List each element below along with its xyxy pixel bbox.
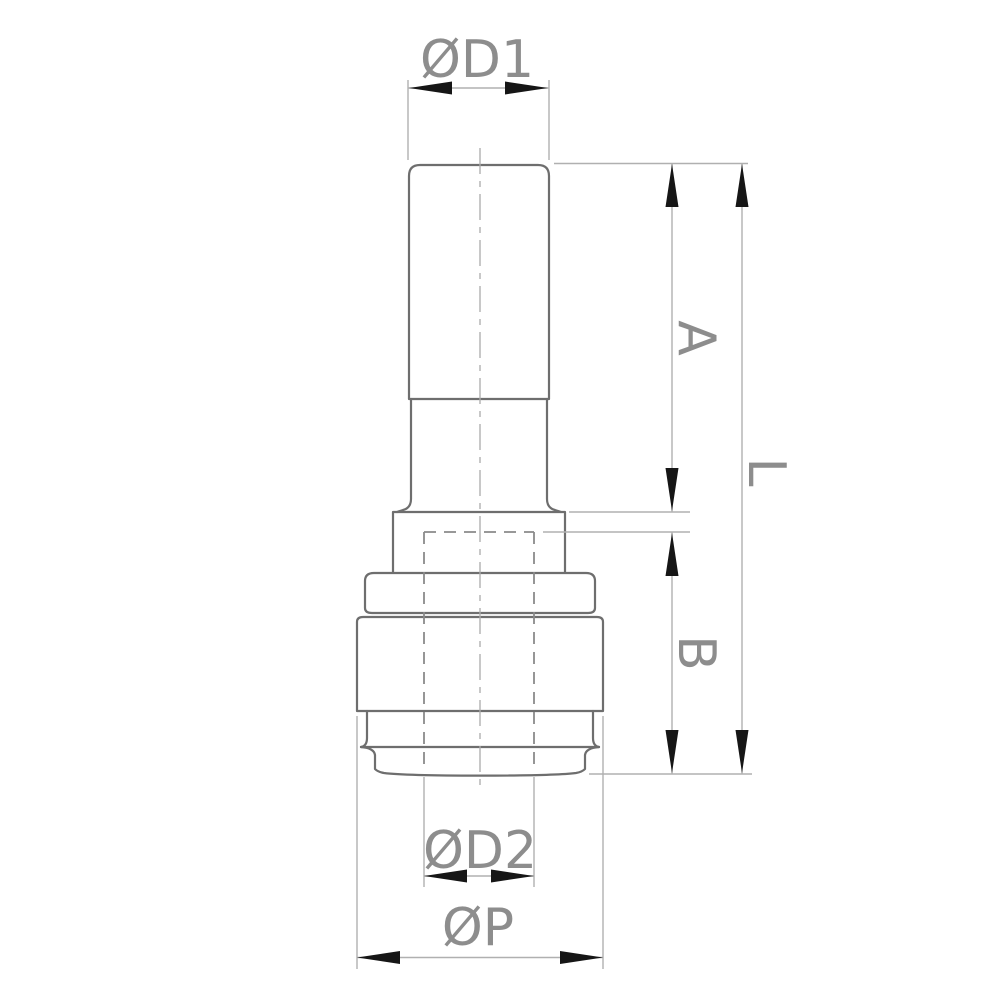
lip-to-cap-left: [361, 747, 375, 755]
fitting-technical-drawing: ØD1 A L B ØD2 ØP: [0, 0, 1000, 1000]
stem-upper-outline: [409, 165, 549, 399]
lower-ring-left-edge: [361, 711, 367, 747]
dimension-arrowheads: [357, 82, 749, 965]
stem-lower-right-edge: [547, 399, 561, 512]
label-length-l: L: [736, 458, 796, 487]
arrow-p-left: [357, 951, 400, 964]
arrow-a-bottom: [666, 468, 679, 511]
extension-lines: [357, 80, 752, 969]
lower-ring-right-edge: [593, 711, 599, 747]
dimension-labels: ØD1 A L B ØD2 ØP: [420, 30, 796, 958]
arrow-b-top: [666, 533, 679, 576]
stem-lower-left-edge: [397, 399, 411, 512]
arrow-l-bottom: [736, 730, 749, 773]
label-length-b: B: [666, 635, 726, 671]
arrow-p-right: [560, 951, 603, 964]
hidden-bore-lines: [424, 532, 534, 771]
label-length-a: A: [666, 320, 726, 356]
lip-to-cap-right: [585, 747, 599, 755]
arrow-a-top: [666, 164, 679, 207]
collar-outline: [393, 512, 565, 572]
label-diameter-d1: ØD1: [420, 30, 534, 90]
label-diameter-p: ØP: [442, 898, 514, 958]
drawing-canvas: ØD1 A L B ØD2 ØP: [0, 0, 1000, 1000]
arrow-l-top: [736, 164, 749, 207]
label-diameter-d2: ØD2: [423, 821, 537, 881]
arrow-b-bottom: [666, 730, 679, 773]
